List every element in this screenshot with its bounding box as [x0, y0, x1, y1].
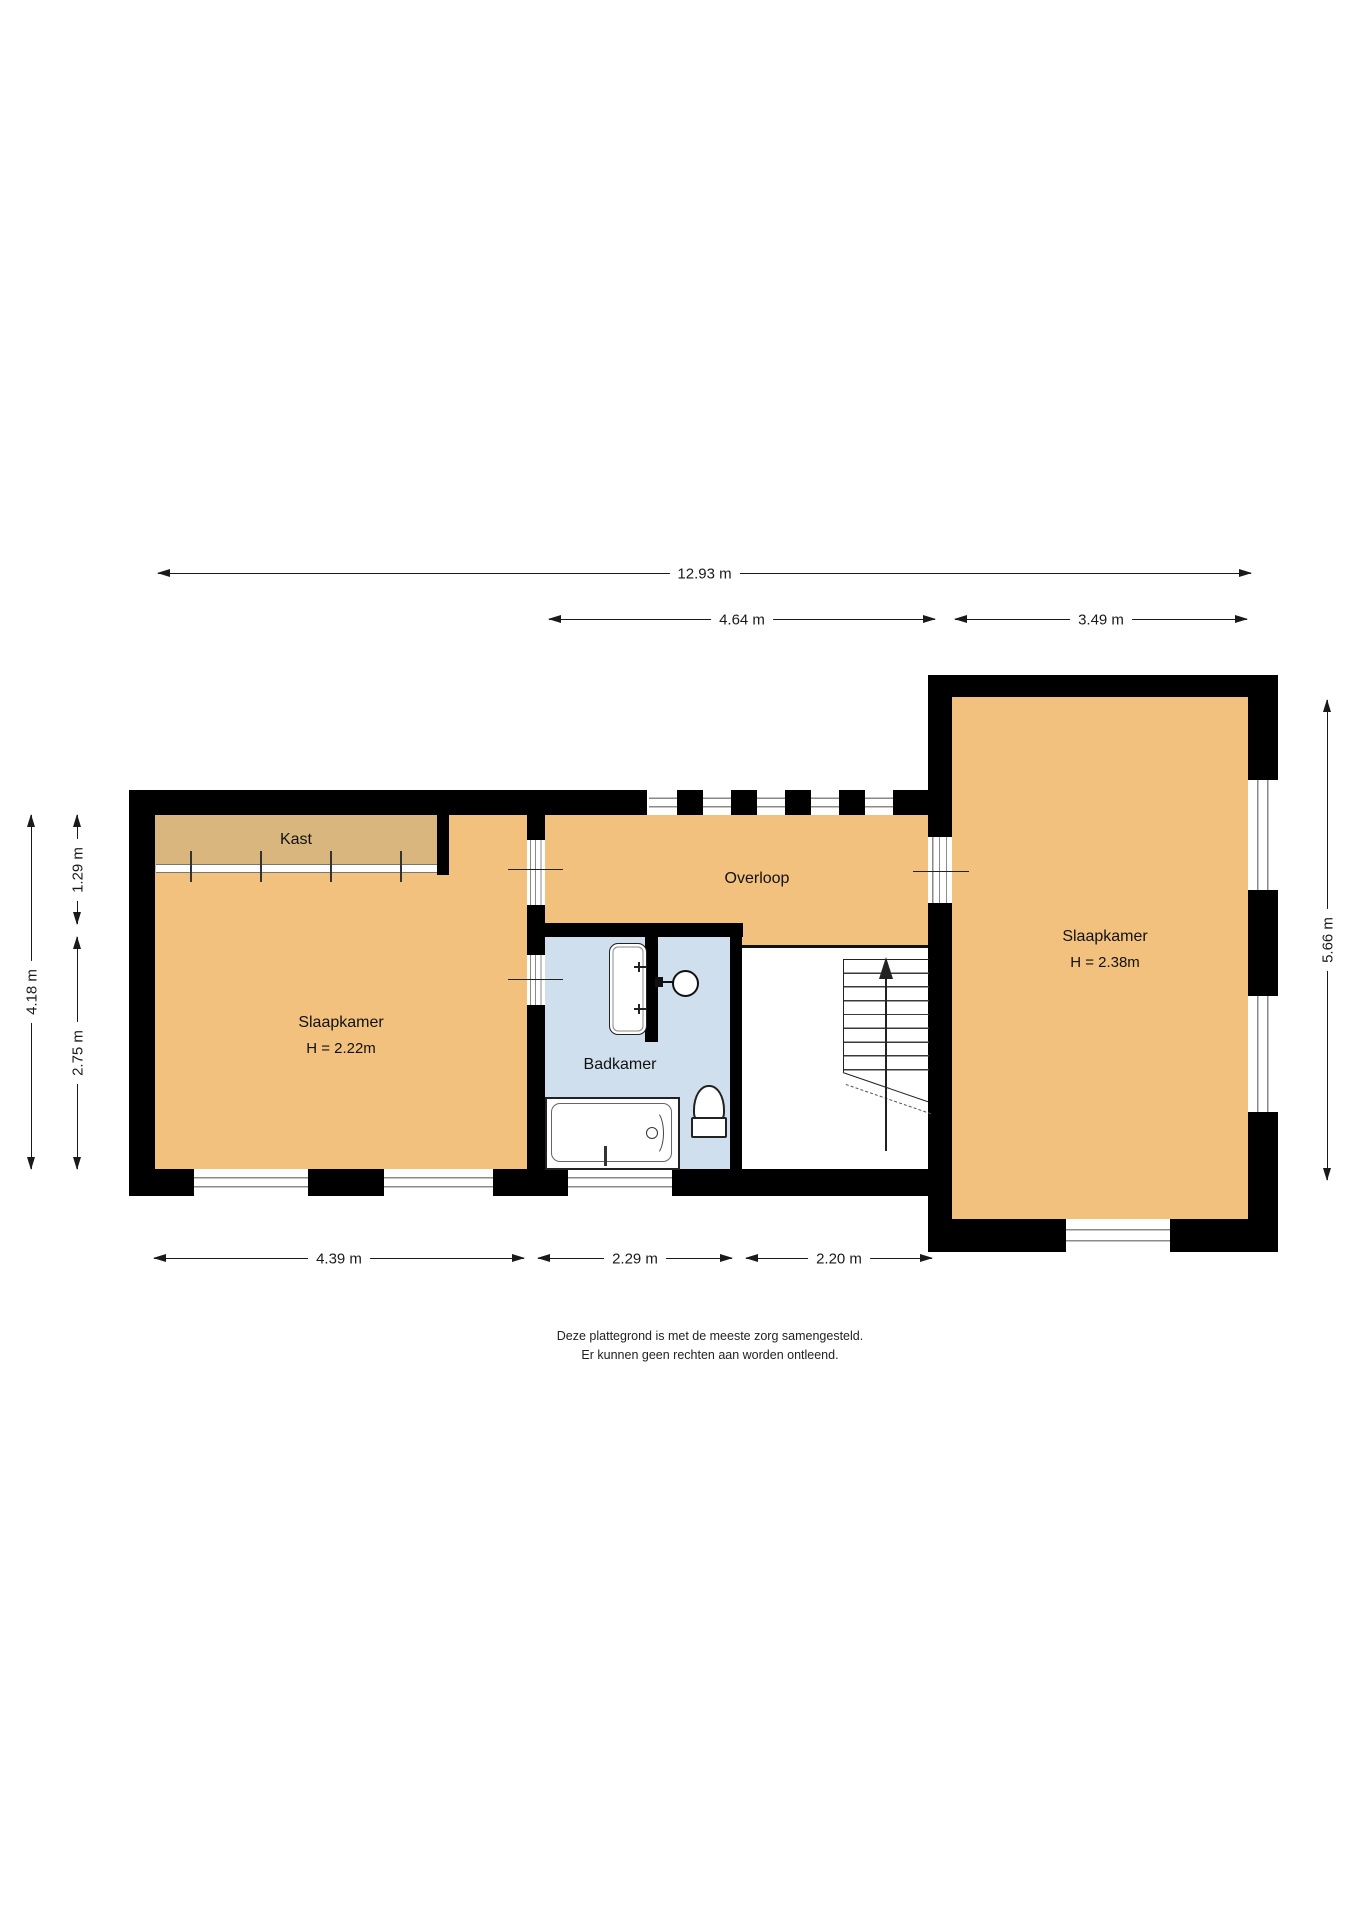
dimension-label: 2.75 m [69, 1022, 86, 1084]
arrow-up-icon [73, 814, 81, 827]
room-label-overloop: Overloop [677, 870, 837, 888]
room-height-slaapkamer-left: H = 2.22m [241, 1040, 441, 1057]
window [568, 1169, 672, 1196]
wall-south-seg [308, 1169, 384, 1196]
disclaimer-line2: Er kunnen geen rechten aan worden ontlee… [410, 1346, 1010, 1365]
dimension-label: 5.66 m [1319, 909, 1336, 971]
dimension-right-width: 3.49 m [955, 619, 1247, 620]
dimension-middle-width: 4.64 m [549, 619, 935, 620]
wall-top-left [129, 790, 647, 815]
closet-slider-tick [260, 851, 262, 882]
disclaimer-line1: Deze plattegrond is met de meeste zorg s… [410, 1327, 1010, 1346]
arrow-down-icon [1323, 1168, 1331, 1181]
overloop-edge-line [742, 945, 928, 948]
wall-right-east-seg [1248, 697, 1278, 780]
dimension-bath-width: 2.29 m [538, 1258, 732, 1259]
balustrade-post [839, 790, 865, 815]
closet-slider-tick [190, 851, 192, 882]
wall-right-north [928, 675, 1278, 697]
wall-badkamer-east [730, 937, 742, 1169]
dimension-label: 4.64 m [711, 611, 773, 628]
window [649, 790, 677, 815]
window [1066, 1219, 1170, 1252]
dimension-label: 1.29 m [69, 839, 86, 901]
arrow-up-icon [27, 814, 35, 827]
arrow-down-icon [73, 1157, 81, 1170]
door-opening [527, 840, 545, 905]
door-opening [527, 955, 545, 1005]
wall-kast-stub [437, 815, 449, 875]
stair-arrow-head [879, 957, 893, 979]
arrow-right-icon [1239, 569, 1252, 577]
arrow-up-icon [1323, 699, 1331, 712]
faucet-icon [634, 966, 647, 968]
wall-south-seg [493, 1169, 568, 1196]
balustrade-post [893, 790, 928, 815]
wall-badkamer-north [527, 923, 743, 937]
room-height-slaapkamer-right: H = 2.38m [1005, 954, 1205, 971]
door-line [913, 871, 969, 872]
wall-west [129, 790, 155, 1196]
wall-right-west-seg [928, 697, 952, 837]
arrow-right-icon [1235, 615, 1248, 623]
arrow-right-icon [512, 1254, 525, 1262]
dimension-total-width: 12.93 m [158, 573, 1251, 574]
window [1248, 996, 1278, 1112]
door-line [508, 869, 563, 870]
wall-right-south-seg [928, 1219, 1066, 1252]
room-label-badkamer: Badkamer [540, 1056, 700, 1074]
wall-mid-seg [527, 815, 545, 840]
arrow-left-icon [745, 1254, 758, 1262]
closet-slider-tick [400, 851, 402, 882]
wall-right-east-seg [1248, 890, 1278, 996]
toilet-tank [691, 1117, 727, 1138]
dimension-label: 12.93 m [669, 565, 739, 582]
disclaimer: Deze plattegrond is met de meeste zorg s… [410, 1327, 1010, 1365]
window [811, 790, 839, 815]
mirror-icon [672, 970, 699, 997]
wall-mid-seg [527, 1005, 545, 1169]
wall-right-south-seg [1170, 1219, 1278, 1252]
stair-direction-arrow [885, 978, 887, 1151]
balustrade-post [785, 790, 811, 815]
balustrade-post [677, 790, 703, 815]
closet-slider-tick [330, 851, 332, 882]
arrow-up-icon [73, 936, 81, 949]
window [194, 1169, 308, 1196]
arrow-left-icon [954, 615, 967, 623]
faucet-icon [634, 1008, 647, 1010]
room-label-slaapkamer-left: Slaapkamer [241, 1014, 441, 1032]
arrow-right-icon [920, 1254, 933, 1262]
closet-slider [156, 864, 437, 873]
dimension-left-room-width: 4.39 m [154, 1258, 524, 1259]
door-line [508, 979, 563, 980]
wall-south-seg [129, 1169, 194, 1196]
dimension-label: 3.49 m [1070, 611, 1132, 628]
dimension-label: 2.29 m [604, 1250, 666, 1267]
dimension-label: 4.39 m [308, 1250, 370, 1267]
arrow-left-icon [153, 1254, 166, 1262]
dimension-right-depth: 5.66 m [1327, 700, 1328, 1180]
arrow-right-icon [923, 615, 936, 623]
arrow-down-icon [73, 912, 81, 925]
window [865, 790, 893, 815]
room-label-slaapkamer-right: Slaapkamer [1005, 928, 1205, 946]
door-opening [928, 837, 952, 903]
window [703, 790, 731, 815]
window [757, 790, 785, 815]
wall-right-east-seg [1248, 1112, 1278, 1219]
arrow-right-icon [720, 1254, 733, 1262]
window [384, 1169, 493, 1196]
arrow-left-icon [157, 569, 170, 577]
room-label-kast: Kast [216, 831, 376, 849]
arrow-left-icon [537, 1254, 550, 1262]
dimension-bath-depth: 2.75 m [77, 937, 78, 1169]
wall-south-seg [672, 1169, 928, 1196]
washbasin-vanity [609, 943, 647, 1035]
arrow-down-icon [27, 1157, 35, 1170]
balustrade-post [731, 790, 757, 815]
window [1248, 780, 1278, 890]
dimension-label: 4.18 m [23, 961, 40, 1023]
bathtub-drain [646, 1127, 658, 1139]
arrow-left-icon [548, 615, 561, 623]
dimension-label: 2.20 m [808, 1250, 870, 1267]
wall-right-west-seg [928, 903, 952, 1252]
floor-plan-canvas: Kast Overloop Slaapkamer H = 2.22m Badka… [0, 0, 1358, 1920]
bathtub-tap [604, 1146, 607, 1166]
dimension-left-total-depth: 4.18 m [31, 815, 32, 1169]
dimension-stairs-width: 2.20 m [746, 1258, 932, 1259]
dimension-overloop-depth: 1.29 m [77, 815, 78, 924]
